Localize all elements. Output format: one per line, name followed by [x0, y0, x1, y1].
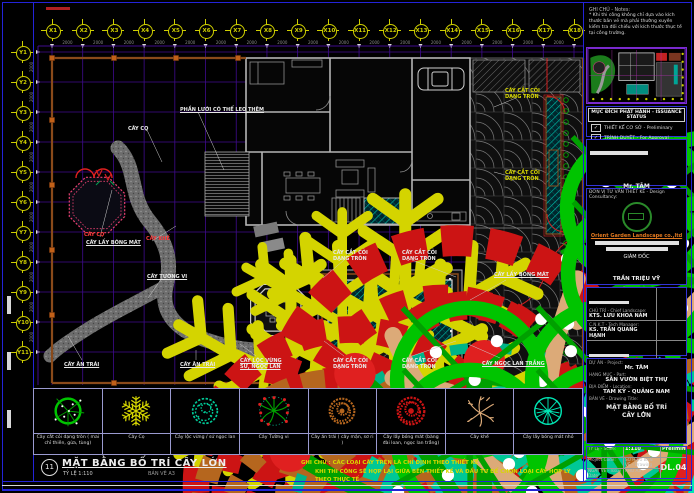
axis-bubble-x: X11 — [353, 24, 368, 39]
issuance-header: MỤC ĐÍCH PHÁT HÀNH - ISSUANCE STATUS — [588, 108, 685, 122]
axis-bubble-y: Y4 — [16, 136, 31, 151]
consultant-address-bar — [595, 241, 679, 245]
axis-dimension: 2000 — [29, 122, 34, 132]
legend-item: Cây cắt cỏi dạng tròn ( mai chỉ thiên, g… — [34, 389, 103, 454]
plan-label: CÂY CẮT CỎIDẠNG TRÒN — [402, 358, 437, 371]
drawing-no-label: SỐ HIỆU BẢN VẼ - Drawing No: — [624, 458, 661, 469]
axis-dimension: 2000 — [277, 40, 287, 45]
drawing-titlebar: 11 MẶT BẰNG BỐ TRÍ CÂY LỚN TỶ LỆ 1:110 B… — [33, 455, 583, 481]
personnel-name: KS. TRẦN QUANG HẠNH — [589, 327, 654, 339]
legend-item: Cây ăn trái ( cây mận, sơ ri ) — [309, 389, 378, 454]
axis-dimension: 2000 — [554, 40, 564, 45]
plan-label: CÂY LỘC VỪNGSỨ, NGỌC LAN — [240, 358, 282, 371]
consultant-logo-icon — [622, 202, 652, 232]
bottom-white-line — [2, 485, 692, 486]
legend-item: Cây lộc vừng / sứ ngọc lan — [171, 389, 240, 454]
small-shade-icon — [514, 389, 582, 433]
axis-bubble-x: X12 — [383, 24, 398, 39]
sym-round-topiary-icon — [49, 392, 87, 430]
fruit-icon — [309, 389, 377, 433]
plan-label: PHẦN LƯỚI CÓ THỂ LEO THÊM — [180, 107, 264, 113]
axis-dimension: 2000 — [29, 62, 34, 72]
plan-label: CÂY NGỌC LAN TRẮNG — [482, 361, 545, 367]
legend-label: Cây Tường vi — [240, 433, 308, 454]
sym-palm-icon — [117, 392, 155, 430]
consultant-header: ĐƠN VỊ TƯ VẤN THIẾT KẾ - Design Consulta… — [587, 189, 686, 201]
axis-dimension: 2000 — [29, 92, 34, 102]
margin-mark — [7, 352, 11, 370]
note-line-1: GHI CHÚ : CÁC LOẠI CÂY TRÊN LÀ CHỈ ĐỊNH … — [301, 459, 583, 468]
axis-dimension: 2000 — [29, 182, 34, 192]
starfruit-icon — [446, 389, 514, 433]
plan-label: CÂY KHẾ — [146, 236, 170, 242]
axis-dimension: 2000 — [154, 40, 164, 45]
axis-bubble-x: X18 — [568, 24, 583, 39]
axis-bubble-x: X13 — [414, 24, 429, 39]
axis-bubble-y: Y5 — [16, 166, 31, 181]
legend-label: Cây Cọ — [103, 433, 171, 454]
plan-label: CÂY CẮT CỎIDẠNG TRÒN — [505, 170, 540, 183]
paper-size: KHỔ A3 — [624, 469, 661, 478]
margin-mark — [7, 410, 11, 428]
teal-blob-icon — [171, 389, 239, 433]
title-block-sidebar: GHI CHÚ - Notes: * Khi thi công không ch… — [583, 2, 690, 481]
axis-dimension: 2000 — [247, 40, 257, 45]
axis-dimension: 2000 — [462, 40, 472, 45]
axis-dimension: 2000 — [29, 272, 34, 282]
scale-value: 1:110 — [624, 447, 661, 458]
personnel-label-bar — [589, 301, 629, 305]
drawing-no-value: DL.04 — [661, 458, 686, 478]
project-box: DỰ ÁN - Project: Mr. TÂM HẠNG MỤC - Part… — [586, 358, 687, 444]
sym-crape-icon — [255, 392, 293, 430]
axis-dimension: 2000 — [62, 40, 72, 45]
legend-label: Cây lấy bóng mát (bàng đài loan, ngọc la… — [377, 433, 445, 454]
axis-dimension: 2000 — [29, 212, 34, 222]
drawing-sheet: X12000X22000X32000X42000X52000X62000X720… — [0, 0, 694, 493]
axis-bubble-x: X2 — [76, 24, 91, 39]
axis-bubble-y: Y7 — [16, 226, 31, 241]
plan-label: CÂY CẮT CỎIDẠNG TRÒN — [402, 250, 437, 263]
axis-dimension: 2000 — [400, 40, 410, 45]
axis-bubble-y: Y8 — [16, 256, 31, 271]
sym-starfruit-icon — [461, 392, 499, 430]
notes-box: GHI CHÚ - Notes: * Khi thi công không ch… — [586, 6, 687, 46]
axis-bubble-y: Y2 — [16, 76, 31, 91]
personnel-signature-cell — [657, 288, 686, 320]
status-value: Preliminary — [661, 447, 686, 458]
drawing-title-value: MẶT BẰNG BỐ TRÍ CÂY LỚN — [601, 404, 673, 420]
drawing-size: BẢN VẼ A3 — [148, 471, 175, 477]
personnel-row: CHỦ TRÌ - Chief Landscape:KTS. LƯU KHOA … — [587, 288, 686, 321]
axis-dimension: 2000 — [29, 332, 34, 342]
sym-shade-icon — [392, 392, 430, 430]
plan-label: CÂY LẤY BÓNG MÁT — [86, 240, 141, 246]
crape-icon — [240, 389, 308, 433]
key-plan-thumbnail — [586, 47, 687, 104]
issuance-label: THIẾT KẾ CƠ SỞ - Preliminary — [604, 126, 673, 131]
legend-item: Cây lấy bóng mát (bàng đài loan, ngọc la… — [377, 389, 446, 454]
axis-bubble-y: Y11 — [16, 346, 31, 361]
axis-dimension: 2000 — [339, 40, 349, 45]
note-line-2: KHI THI CÔNG SẼ HỢP LẠI GIỮA BÊN THIẾT K… — [315, 468, 583, 485]
corner-annotation — [46, 7, 70, 10]
key-plan-map — [587, 48, 686, 103]
axis-dimension: 2000 — [523, 40, 533, 45]
personnel-cell: C.N.K.T - Tech Manager:KS. TRẦN QUANG HẠ… — [587, 321, 657, 340]
axis-bubble-x: X5 — [168, 24, 183, 39]
axis-bubble-y: Y6 — [16, 196, 31, 211]
tree-legend: Cây cắt cỏi dạng tròn ( mai chỉ thiên, g… — [33, 388, 583, 455]
checkbox-icon: ✓ — [591, 124, 601, 132]
issuance-box: MỤC ĐÍCH PHÁT HÀNH - ISSUANCE STATUS ✓TH… — [586, 106, 687, 137]
legend-label: Cây cắt cỏi dạng tròn ( mai chỉ thiên, g… — [34, 433, 102, 454]
plan-label: CÂY LẤY BÓNG MÁT — [494, 272, 549, 278]
plan-label: CÂY ĂN TRÁI — [64, 362, 99, 368]
notes-body: * Khi thi công không chỉ dựa vào kích th… — [587, 13, 686, 38]
axis-dimension: 2000 — [492, 40, 502, 45]
legend-item: Cây khế — [446, 389, 515, 454]
axis-dimension: 2000 — [29, 152, 34, 162]
legend-label: Cây ăn trái ( cây mận, sơ ri ) — [309, 433, 377, 454]
plan-label: CÂY TƯỜNG VI — [147, 274, 187, 280]
plan-label: CÂY CẮT CỎIDẠNG TRÒN — [333, 250, 368, 263]
personnel-cell: CHỦ TRÌ - Chief Landscape:KTS. LƯU KHOA … — [587, 288, 657, 320]
legend-label: Cây lấy bóng mát nhỏ — [514, 433, 582, 454]
sym-fruit-icon — [323, 392, 361, 430]
axis-bubble-x: X3 — [107, 24, 122, 39]
drawing-scale: TỶ LỆ 1:110 — [63, 471, 93, 477]
consultant-company: Orient Garden Landscape co.,ltd — [587, 233, 686, 239]
plan-label: CÂY ĂN TRÁI — [180, 362, 215, 368]
sym-small-shade-icon — [529, 392, 567, 430]
legend-label: Cây lộc vừng / sứ ngọc lan — [171, 433, 239, 454]
axis-bubble-y: Y10 — [16, 316, 31, 331]
drawing-notes: GHI CHÚ : CÁC LOẠI CÂY TRÊN LÀ CHỈ ĐỊNH … — [301, 459, 583, 485]
drawing-title-label: BẢN VẼ - Drawing Title: — [587, 395, 686, 401]
consultant-box: ĐƠN VỊ TƯ VẤN THIẾT KẾ - Design Consulta… — [586, 188, 687, 285]
margin-mark — [7, 296, 11, 314]
legend-label: Cây khế — [446, 433, 514, 454]
axis-bubble-x: X16 — [506, 24, 521, 39]
issuance-row: ✓THIẾT KẾ CƠ SỞ - Preliminary — [587, 123, 686, 133]
axis-bubble-x: X14 — [445, 24, 460, 39]
axis-dimension: 2000 — [308, 40, 318, 45]
axis-bubble-x: X6 — [199, 24, 214, 39]
director-title: GIÁM ĐỐC — [587, 254, 686, 260]
axis-dimension: 2000 — [185, 40, 195, 45]
client-label-bar — [590, 151, 648, 155]
legend-item: Cây Tường vi — [240, 389, 309, 454]
plan-label: CÂY CẮT CỎIDẠNG TRÒN — [505, 88, 540, 101]
axis-dimension: 2000 — [29, 302, 34, 312]
palm-icon — [103, 389, 171, 433]
axis-bubble-x: X10 — [322, 24, 337, 39]
axis-bubble-x: X17 — [537, 24, 552, 39]
axis-bubble-x: X1 — [46, 24, 61, 39]
client-box: Mr. TÂM — [586, 139, 687, 186]
legend-item: Cây lấy bóng mát nhỏ — [514, 389, 582, 454]
personnel-table: CHỦ TRÌ - Chief Landscape:KTS. LƯU KHOA … — [586, 287, 687, 356]
legend-item: Cây Cọ — [103, 389, 172, 454]
bottom-frame-line2 — [2, 489, 692, 490]
director-name: TRẦN TRIỆU VỸ — [587, 276, 686, 282]
axis-dimension: 2000 — [29, 242, 34, 252]
axis-dimension: 2000 — [431, 40, 441, 45]
scale-label: TỶ LỆ - Scale: — [587, 447, 624, 458]
plan-label: CÂY CỌ — [84, 232, 104, 238]
round-topiary-icon — [34, 389, 102, 433]
axis-bubble-x: X8 — [260, 24, 275, 39]
axis-bubble-y: Y9 — [16, 286, 31, 301]
personnel-row: C.N.K.T - Tech Manager:KS. TRẦN QUANG HẠ… — [587, 321, 686, 341]
axis-bubble-x: X4 — [138, 24, 153, 39]
axis-bubble-y: Y3 — [16, 106, 31, 121]
axis-dimension: 2000 — [369, 40, 379, 45]
code-label: Project Code: — [587, 458, 624, 469]
sym-teal-blob-icon — [186, 392, 224, 430]
issue-date-label: NGÀY VẼ - Issue Date: — [587, 469, 624, 478]
axis-bubble-y: Y1 — [16, 46, 31, 61]
consultant-address-bar — [606, 247, 668, 251]
axis-dimension: 2000 — [124, 40, 134, 45]
plan-label: CÂY CẮT CỎIDẠNG TRÒN — [333, 358, 368, 371]
axis-bubble-x: X9 — [291, 24, 306, 39]
plan-label: CÂY CỌ — [128, 126, 148, 132]
axis-bubble-x: X15 — [475, 24, 490, 39]
personnel-label-bar — [589, 354, 629, 358]
axis-bubble-x: X7 — [230, 24, 245, 39]
personnel-name: KTS. LƯU KHOA NAM — [589, 313, 654, 319]
drawing-title: MẶT BẰNG BỐ TRÍ CÂY LỚN — [62, 458, 227, 469]
drawing-number-bubble: 11 — [41, 459, 58, 476]
titleblock-table: TỶ LỆ - Scale: 1:110 Preliminary Project… — [586, 446, 687, 479]
personnel-signature-cell — [657, 321, 686, 340]
axis-dimension: 2000 — [216, 40, 226, 45]
shade-icon — [377, 389, 445, 433]
axis-dimension: 2000 — [93, 40, 103, 45]
